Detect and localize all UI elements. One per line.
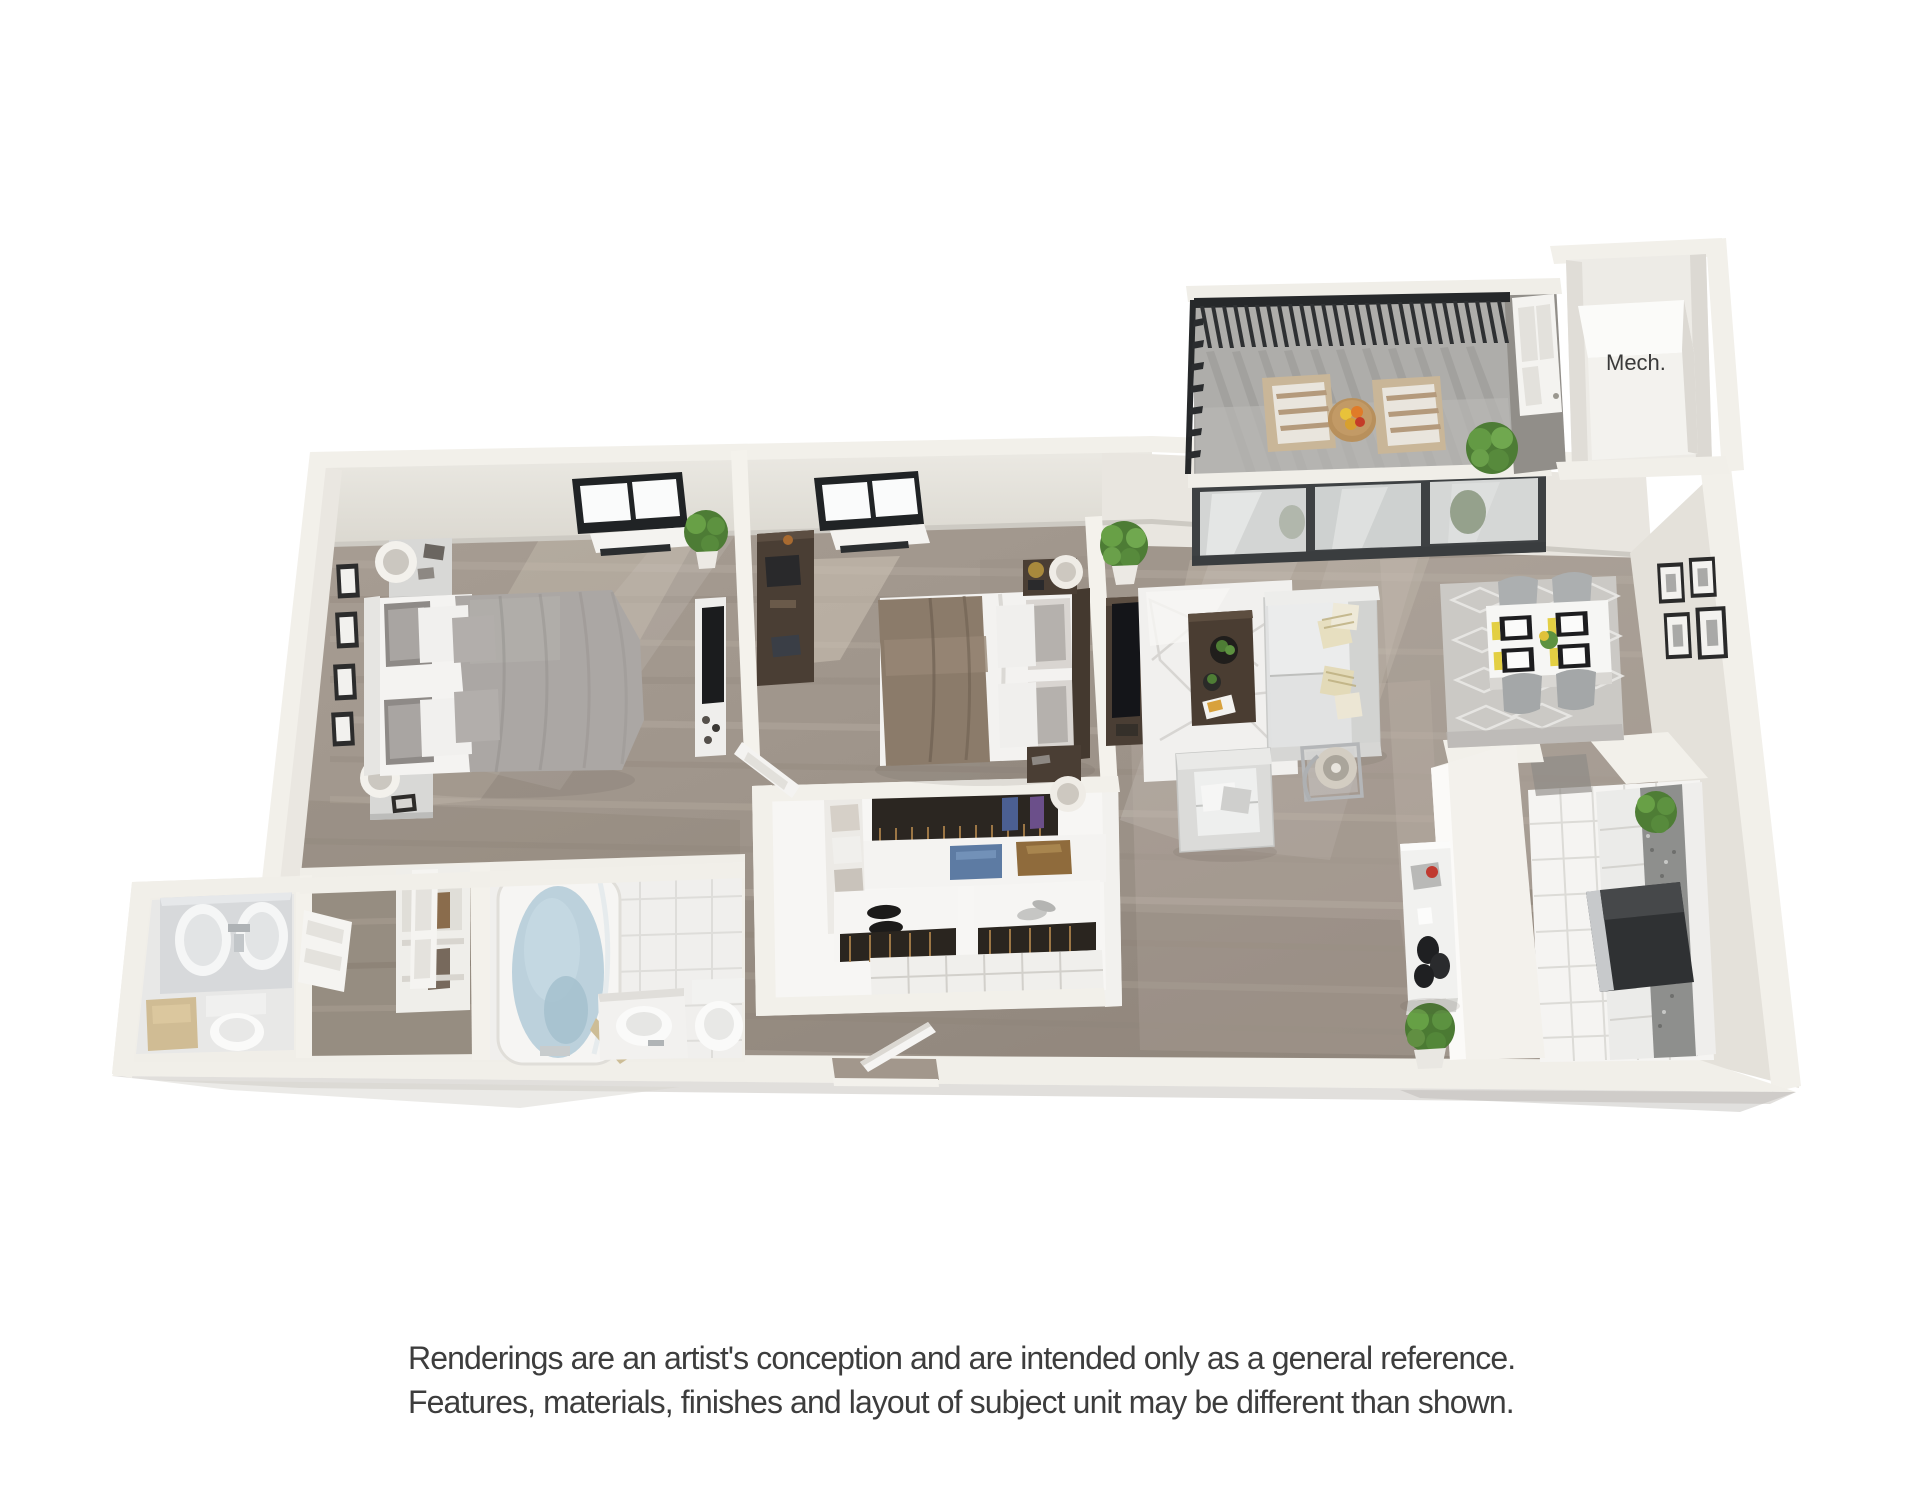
svg-text:Mech.: Mech. <box>1606 350 1666 375</box>
svg-text:Features, materials, finishes: Features, materials, finishes and layout… <box>408 1384 1514 1420</box>
svg-text:Renderings are an artist's con: Renderings are an artist's conception an… <box>408 1340 1515 1376</box>
